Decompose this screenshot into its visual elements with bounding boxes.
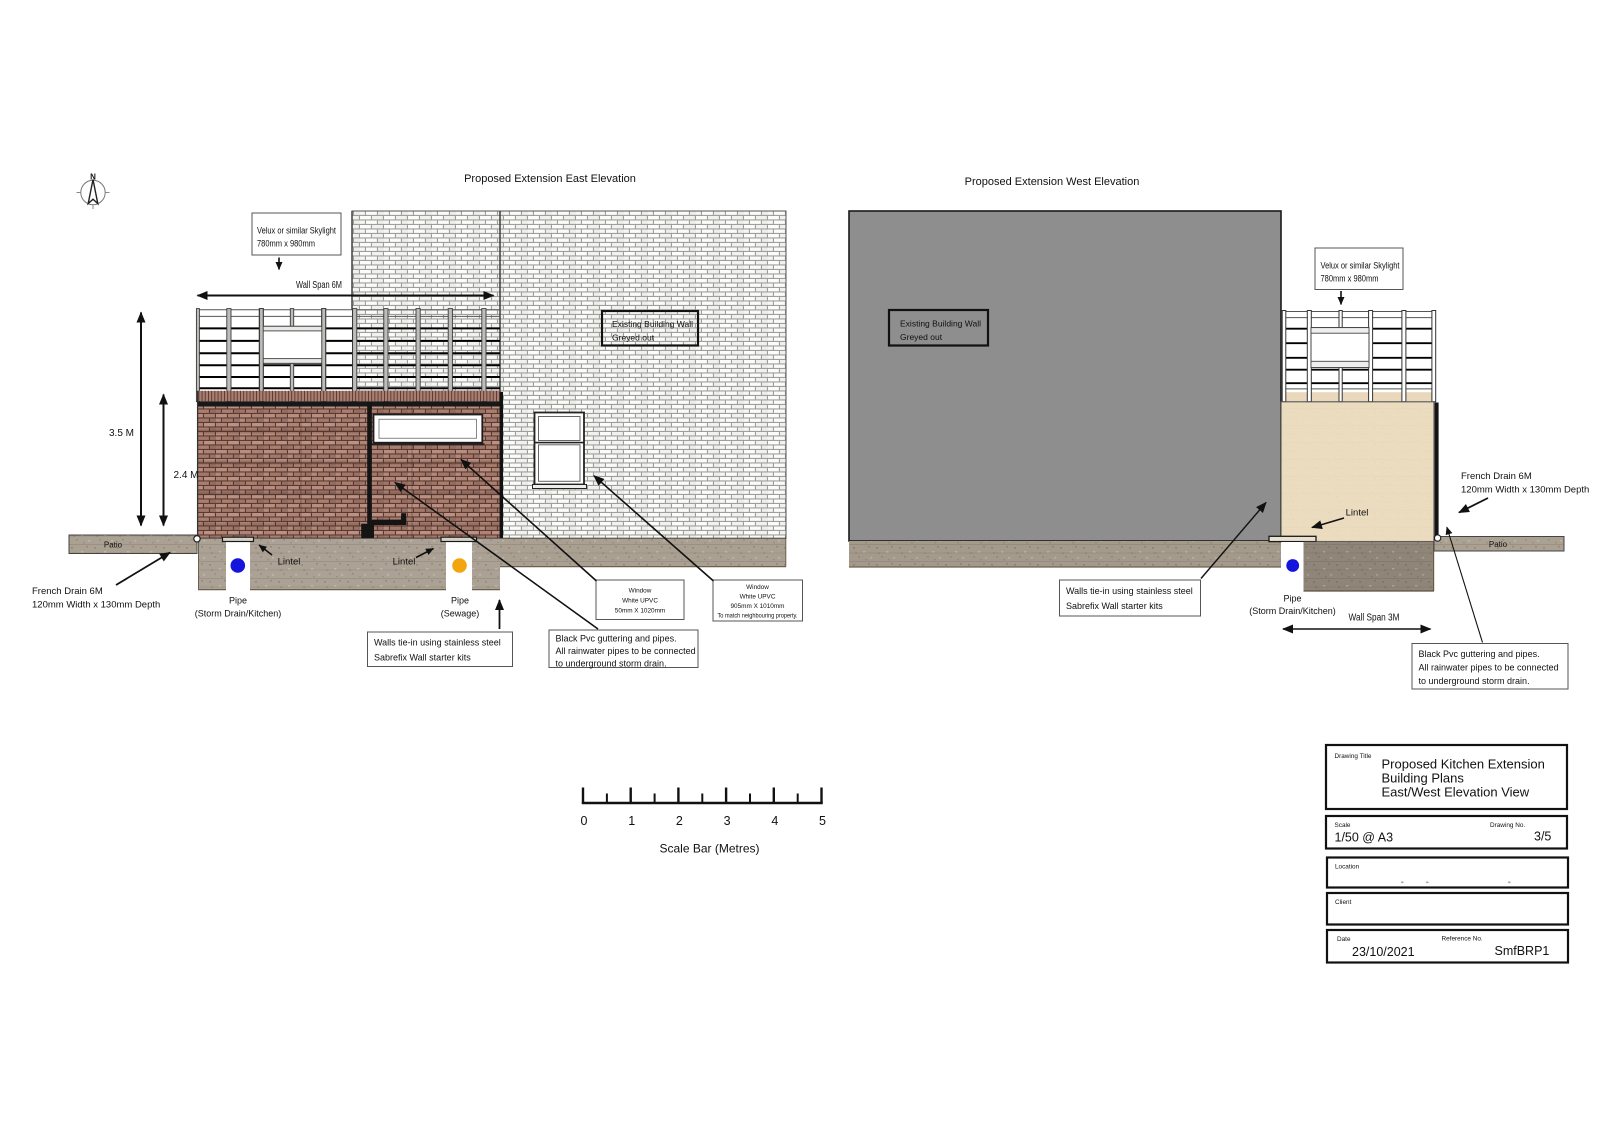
svg-text:50mm X 1020mm: 50mm X 1020mm bbox=[615, 608, 665, 615]
svg-text:Black Pvc guttering and pipes.: Black Pvc guttering and pipes. bbox=[556, 634, 677, 644]
svg-text:Scale Bar (Metres): Scale Bar (Metres) bbox=[659, 842, 759, 856]
svg-text:(Storm Drain/Kitchen): (Storm Drain/Kitchen) bbox=[1249, 606, 1336, 616]
svg-text:Date: Date bbox=[1337, 936, 1351, 943]
svg-text:Walls tie-in using stainless s: Walls tie-in using stainless steel bbox=[1066, 586, 1193, 596]
svg-text:Sabrefix Wall starter kits: Sabrefix Wall starter kits bbox=[374, 653, 471, 663]
svg-text:Black Pvc guttering and pipes.: Black Pvc guttering and pipes. bbox=[1419, 649, 1540, 659]
svg-text:Wall Span 6M: Wall Span 6M bbox=[296, 280, 342, 291]
svg-text:Greyed out: Greyed out bbox=[612, 333, 655, 343]
svg-text:Walls tie-in using stainless s: Walls tie-in using stainless steel bbox=[374, 638, 501, 648]
svg-text:Building Plans: Building Plans bbox=[1382, 771, 1465, 786]
svg-text:French Drain 6M: French Drain 6M bbox=[1461, 471, 1532, 482]
svg-text:905mm X 1010mm: 905mm X 1010mm bbox=[731, 603, 785, 610]
svg-text:All rainwater pipes to be conn: All rainwater pipes to be connected bbox=[556, 646, 696, 656]
svg-text:Velux or similar Skylight: Velux or similar Skylight bbox=[257, 226, 336, 236]
svg-text:Proposed Kitchen Extension: Proposed Kitchen Extension bbox=[1382, 757, 1545, 772]
svg-text:Drawing No.: Drawing No. bbox=[1490, 822, 1525, 829]
svg-text:French Drain 6M: French Drain 6M bbox=[32, 586, 103, 597]
svg-text:23/10/2021: 23/10/2021 bbox=[1352, 945, 1415, 959]
svg-text:Velux or similar Skylight: Velux or similar Skylight bbox=[1321, 261, 1400, 271]
svg-text:780mm x 980mm: 780mm x 980mm bbox=[1321, 274, 1379, 284]
svg-text:Lintel: Lintel bbox=[393, 557, 416, 568]
svg-text:Location: Location bbox=[1335, 864, 1360, 871]
svg-text:Scale: Scale bbox=[1335, 822, 1351, 829]
svg-text:To match neighbouring property: To match neighbouring property. bbox=[718, 613, 798, 620]
svg-text:4: 4 bbox=[771, 814, 778, 828]
svg-text:120mm Width x 130mm Depth: 120mm Width x 130mm Depth bbox=[1461, 485, 1589, 496]
svg-text:Proposed Extension West Elevat: Proposed Extension West Elevation bbox=[965, 176, 1140, 188]
svg-text:Window: Window bbox=[629, 588, 652, 595]
svg-text:White UPVC: White UPVC bbox=[740, 594, 776, 601]
svg-text:1: 1 bbox=[628, 814, 635, 828]
svg-text:(Storm Drain/Kitchen): (Storm Drain/Kitchen) bbox=[195, 609, 282, 619]
svg-text:5: 5 bbox=[819, 814, 826, 828]
svg-text:120mm Width x 130mm Depth: 120mm Width x 130mm Depth bbox=[32, 600, 160, 611]
svg-text:2: 2 bbox=[676, 814, 683, 828]
svg-text:Existing Building Wall: Existing Building Wall bbox=[612, 319, 693, 329]
svg-text:Lintel: Lintel bbox=[1346, 508, 1369, 519]
svg-text:Pipe: Pipe bbox=[229, 596, 247, 606]
svg-text:Window: Window bbox=[746, 584, 769, 591]
svg-text:Proposed Extension East Elevat: Proposed Extension East Elevation bbox=[464, 173, 636, 185]
svg-text:0: 0 bbox=[581, 814, 588, 828]
svg-text:Pipe: Pipe bbox=[451, 596, 469, 606]
svg-text:East/West Elevation View: East/West Elevation View bbox=[1382, 785, 1530, 800]
svg-text:Reference No.: Reference No. bbox=[1442, 936, 1483, 943]
svg-text:Patio: Patio bbox=[104, 541, 123, 550]
svg-text:(Sewage): (Sewage) bbox=[441, 609, 480, 619]
svg-text:Existing Building Wall: Existing Building Wall bbox=[900, 319, 981, 329]
svg-text:2.4 M: 2.4 M bbox=[173, 470, 198, 481]
svg-text:Wall Span 3M: Wall Span 3M bbox=[1349, 613, 1400, 624]
svg-text:Greyed out: Greyed out bbox=[900, 332, 943, 342]
svg-text:Client: Client bbox=[1335, 899, 1352, 906]
svg-text:3.5 M: 3.5 M bbox=[109, 428, 134, 439]
svg-text:Lintel: Lintel bbox=[278, 557, 301, 568]
svg-text:Patio: Patio bbox=[1489, 540, 1508, 549]
svg-text:White UPVC: White UPVC bbox=[622, 598, 658, 605]
svg-text:3/5: 3/5 bbox=[1534, 830, 1551, 844]
svg-text:Sabrefix Wall starter kits: Sabrefix Wall starter kits bbox=[1066, 601, 1163, 611]
svg-text:to underground storm drain.: to underground storm drain. bbox=[556, 658, 667, 668]
svg-text:N: N bbox=[90, 173, 96, 182]
svg-text:to underground storm drain.: to underground storm drain. bbox=[1419, 676, 1530, 686]
svg-text:3: 3 bbox=[724, 814, 731, 828]
svg-text:Pipe: Pipe bbox=[1283, 594, 1301, 604]
svg-text:All rainwater pipes to be conn: All rainwater pipes to be connected bbox=[1419, 663, 1559, 673]
svg-text:1/50 @ A3: 1/50 @ A3 bbox=[1335, 831, 1394, 845]
svg-text:Drawing Title: Drawing Title bbox=[1335, 753, 1372, 760]
svg-text:SmfBRP1: SmfBRP1 bbox=[1495, 944, 1550, 958]
svg-text:780mm x 980mm: 780mm x 980mm bbox=[257, 239, 315, 249]
